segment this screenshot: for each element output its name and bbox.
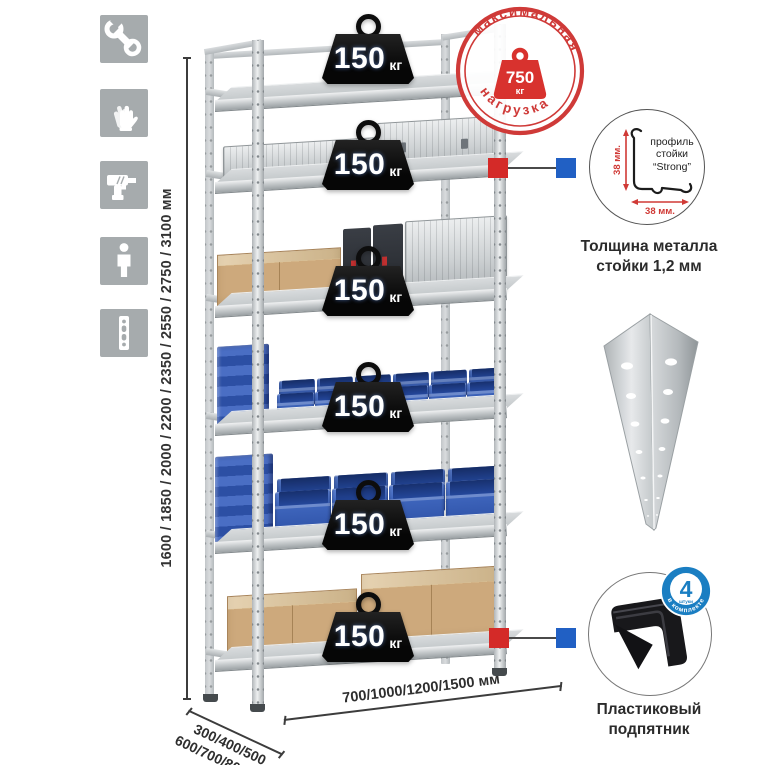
plastic-foot [492, 668, 507, 676]
perforated-post-icon [100, 309, 148, 357]
connector-marker-red [488, 158, 508, 178]
foot-caption-line2: подпятник [564, 720, 734, 740]
profile-label-3: “Strong” [653, 161, 691, 173]
weight-value: 150 [334, 148, 386, 182]
rack-post-back-left [205, 50, 214, 698]
connector-marker-blue [556, 158, 576, 178]
shelving-infographic: 1600 / 1850 / 2000 / 2200 / 2350 / 2550 … [0, 0, 765, 765]
stamp-weight-unit: кг [516, 86, 525, 97]
drill-icon [100, 161, 148, 209]
foot-caption: Пластиковый подпятник [564, 700, 734, 740]
weight-value: 150 [334, 508, 386, 542]
post-profile-circle: 38 мм. 38 мм. профиль стойки “Strong” [589, 109, 705, 225]
weight-value: 150 [334, 390, 386, 424]
max-load-stamp: 750 кг максимальная нагрузка [453, 4, 587, 138]
corner-post-image [596, 300, 704, 532]
stamp-weight-value: 750 [506, 68, 534, 87]
connector-line [509, 637, 556, 639]
foot-caption-line1: Пластиковый [564, 700, 734, 720]
height-dimension-label: 1600 / 1850 / 2000 / 2200 / 2350 / 2550 … [159, 54, 175, 702]
weight-unit: кг [389, 289, 402, 305]
weight-unit: кг [389, 635, 402, 651]
weight-value: 150 [334, 42, 386, 76]
shelf-load-weight: 150кг [322, 14, 414, 84]
weight-unit: кг [389, 163, 402, 179]
weight-unit: кг [389, 523, 402, 539]
weight-unit: кг [389, 57, 402, 73]
connector-marker-blue [556, 628, 576, 648]
wrench-icon [100, 15, 148, 63]
profile-label-1: профиль [650, 136, 694, 148]
shelf-load-weight: 150кг [322, 246, 414, 316]
plastic-foot [250, 704, 265, 712]
shelf-load-weight: 150кг [322, 480, 414, 550]
height-dimension-line [186, 57, 188, 700]
rack-post-front-left [252, 40, 264, 708]
shelf-load-weight: 150кг [322, 362, 414, 432]
profile-caption-line2: стойки 1,2 мм [564, 257, 734, 277]
weight-value: 150 [334, 274, 386, 308]
connector-marker-red [489, 628, 509, 648]
profile-caption-line1: Толщина металла [564, 237, 734, 257]
badge-sub: штуки [679, 599, 693, 604]
width-dimension: 700/1000/1200/1500 мм [281, 664, 562, 721]
profile-drawing: 38 мм. 38 мм. профиль стойки “Strong” [590, 110, 704, 224]
connector-line [508, 167, 556, 169]
profile-label-2: стойки [656, 148, 688, 160]
profile-dim-horizontal: 38 мм. [645, 206, 675, 217]
plastic-foot [203, 694, 218, 702]
depth-dimension: 300/400/500 600/700/800 мм [151, 700, 304, 765]
profile-caption: Толщина металла стойки 1,2 мм [564, 237, 734, 277]
profile-dim-vertical: 38 мм. [612, 145, 623, 175]
weight-unit: кг [389, 405, 402, 421]
gloves-icon [100, 89, 148, 137]
kit-badge: 4 штуки в комплекте [659, 564, 713, 618]
weight-value: 150 [334, 620, 386, 654]
shelf-load-weight: 150кг [322, 592, 414, 662]
shelf-load-weight: 150кг [322, 120, 414, 190]
person-icon [100, 237, 148, 285]
